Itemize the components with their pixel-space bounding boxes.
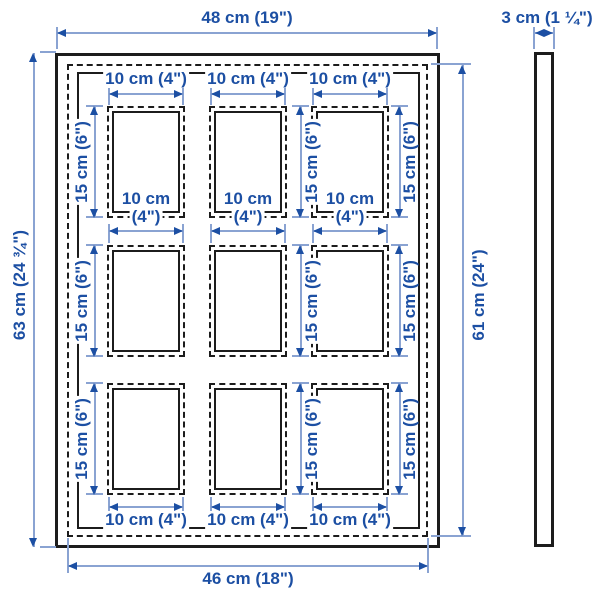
arrow-left-icon <box>109 90 118 98</box>
inner-width-label: 46 cm (18") <box>200 570 295 588</box>
arrow-right-icon <box>544 29 553 37</box>
dim-tick <box>40 51 56 53</box>
dim-line <box>109 93 183 95</box>
arrow-up-icon <box>395 106 403 115</box>
arrow-down-icon <box>296 348 304 357</box>
arrow-left-icon <box>68 562 77 570</box>
arrow-down-icon <box>90 348 98 357</box>
arrow-up-icon <box>90 383 98 392</box>
arrow-right-icon <box>276 90 285 98</box>
dim-line <box>94 383 96 495</box>
arrow-right-icon <box>378 227 387 235</box>
opening-r2c3 <box>316 250 384 352</box>
arrow-left-icon <box>57 29 66 37</box>
arrow-up-icon <box>296 245 304 254</box>
arrow-left-icon <box>313 227 322 235</box>
opening-height-label: 15 cm (6") <box>304 119 320 205</box>
opening-r3c3 <box>316 388 384 490</box>
arrow-right-icon <box>174 90 183 98</box>
dim-line <box>94 106 96 218</box>
arrow-up-icon <box>90 106 98 115</box>
arrow-up-icon <box>296 106 304 115</box>
dim-line <box>109 506 183 508</box>
opening-width-label-line1: 10 cm <box>324 190 376 208</box>
opening-width-label-line2: (4") <box>232 208 265 226</box>
opening-width-label: 10 cm (4") <box>103 511 189 529</box>
dim-tick <box>553 27 555 49</box>
opening-width-label: 10 cm (4") <box>103 70 189 88</box>
opening-width-label-line2: (4") <box>130 208 163 226</box>
dim-line <box>33 53 35 547</box>
depth-label: 3 cm (1 ¼") <box>499 9 594 27</box>
opening-width-label: 10 cm (4") <box>205 511 291 529</box>
arrow-down-icon <box>296 209 304 218</box>
arrow-left-icon <box>211 227 220 235</box>
arrow-up-icon <box>29 53 37 62</box>
opening-width-label: 10 cm (4") <box>205 70 291 88</box>
arrow-down-icon <box>296 486 304 495</box>
dim-line <box>109 230 183 232</box>
inner-height-label: 61 cm (24") <box>471 247 487 342</box>
dim-line <box>94 245 96 357</box>
arrow-down-icon <box>90 486 98 495</box>
opening-width-label: 10 cm (4") <box>307 70 393 88</box>
opening-height-label: 15 cm (6") <box>402 119 418 205</box>
opening-r2c1 <box>112 250 180 352</box>
opening-width-label-line1: 10 cm <box>120 190 172 208</box>
dim-line <box>57 32 437 34</box>
frame-dimension-diagram: 48 cm (19") 3 cm (1 ¼") 63 cm (24 ¾") 61… <box>0 0 600 600</box>
dim-tick <box>40 546 56 548</box>
arrow-up-icon <box>296 383 304 392</box>
dim-line <box>211 506 285 508</box>
arrow-right-icon <box>428 29 437 37</box>
arrow-down-icon <box>395 486 403 495</box>
arrow-down-icon <box>395 348 403 357</box>
arrow-right-icon <box>276 227 285 235</box>
opening-height-label: 15 cm (6") <box>74 119 90 205</box>
dim-line <box>68 565 428 567</box>
side-profile-outline <box>534 52 554 547</box>
opening-r2c2 <box>214 250 282 352</box>
opening-height-label: 15 cm (6") <box>304 396 320 482</box>
opening-r3c1 <box>112 388 180 490</box>
opening-width-label: 10 cm (4") <box>307 511 393 529</box>
arrow-down-icon <box>395 209 403 218</box>
arrow-left-icon <box>211 90 220 98</box>
dim-line <box>211 93 285 95</box>
opening-height-label: 15 cm (6") <box>74 396 90 482</box>
arrow-down-icon <box>29 538 37 547</box>
arrow-down-icon <box>90 209 98 218</box>
opening-width-label-line1: 10 cm <box>222 190 274 208</box>
opening-height-label: 15 cm (6") <box>402 258 418 344</box>
arrow-up-icon <box>90 245 98 254</box>
dim-line <box>313 506 387 508</box>
arrow-right-icon <box>174 227 183 235</box>
opening-height-label: 15 cm (6") <box>402 396 418 482</box>
arrow-left-icon <box>109 227 118 235</box>
opening-width-label-line2: (4") <box>334 208 367 226</box>
arrow-down-icon <box>458 527 466 536</box>
arrow-up-icon <box>395 383 403 392</box>
dim-line <box>313 230 387 232</box>
dim-line <box>313 93 387 95</box>
opening-height-label: 15 cm (6") <box>304 258 320 344</box>
opening-height-label: 15 cm (6") <box>74 258 90 344</box>
overall-width-label: 48 cm (19") <box>199 9 294 27</box>
arrow-up-icon <box>458 65 466 74</box>
overall-height-label: 63 cm (24 ¾") <box>12 228 28 342</box>
opening-r3c2 <box>214 388 282 490</box>
arrow-right-icon <box>378 90 387 98</box>
arrow-up-icon <box>395 245 403 254</box>
dim-line <box>462 65 464 536</box>
arrow-left-icon <box>313 90 322 98</box>
dim-line <box>211 230 285 232</box>
arrow-left-icon <box>535 29 544 37</box>
arrow-right-icon <box>419 562 428 570</box>
